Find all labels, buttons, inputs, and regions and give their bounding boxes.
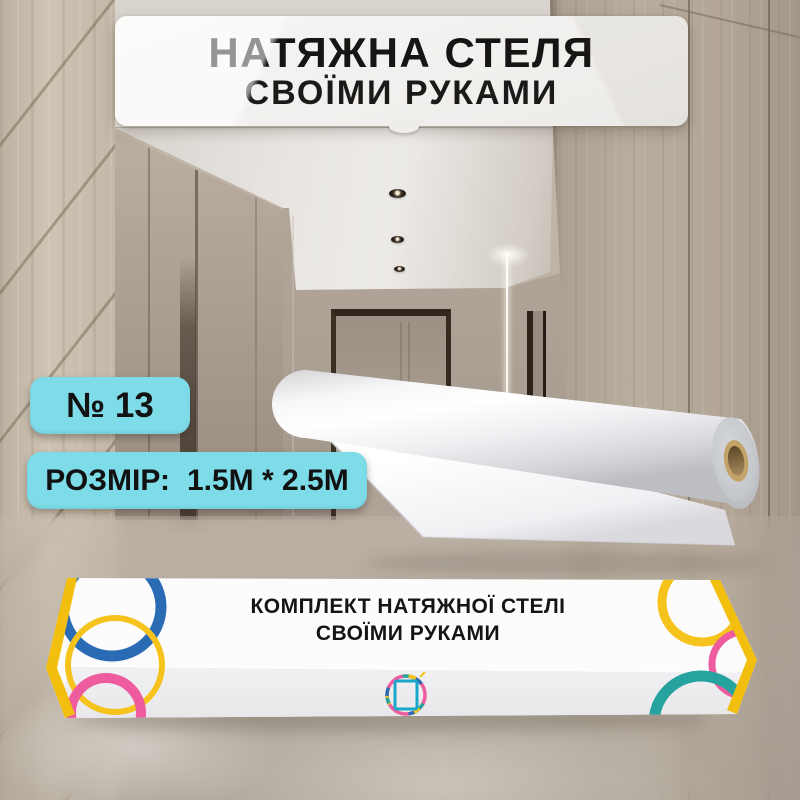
size-value: 1.5М * 2.5М <box>187 464 349 498</box>
title-banner: НАТЯЖНА СТЕЛЯ СВОЇМИ РУКАМИ <box>115 16 688 126</box>
ceiling-spotlight <box>389 189 406 198</box>
box-front-face <box>54 666 744 724</box>
led-light-glow <box>486 243 530 267</box>
size-label: РОЗМІР: <box>45 464 170 498</box>
number-badge: № 13 <box>30 377 190 434</box>
box-title-line-1: КОМПЛЕКТ НАТЯЖНОЇ СТЕЛІ <box>250 595 565 618</box>
roll-shadow <box>365 551 765 575</box>
ceiling-spotlight <box>394 266 405 272</box>
box-title-line-2: СВОЇМИ РУКАМИ <box>316 622 500 645</box>
kit-box-graphic: КОМПЛЕКТ НАТЯЖНОЇ СТЕЛІ СВОЇМИ РУКАМИ <box>44 574 762 724</box>
product-promo-image: НАТЯЖНА СТЕЛЯ СВОЇМИ РУКАМИ № 13 РОЗМІР:… <box>0 0 800 800</box>
banner-tab <box>389 120 419 133</box>
number-badge-text: № 13 <box>66 386 154 426</box>
size-badge: РОЗМІР: 1.5М * 2.5М <box>27 452 367 509</box>
ceiling-spotlight <box>391 236 404 243</box>
banner-line-2: СВОЇМИ РУКАМИ <box>245 76 559 112</box>
banner-line-1: НАТЯЖНА СТЕЛЯ <box>208 30 594 75</box>
